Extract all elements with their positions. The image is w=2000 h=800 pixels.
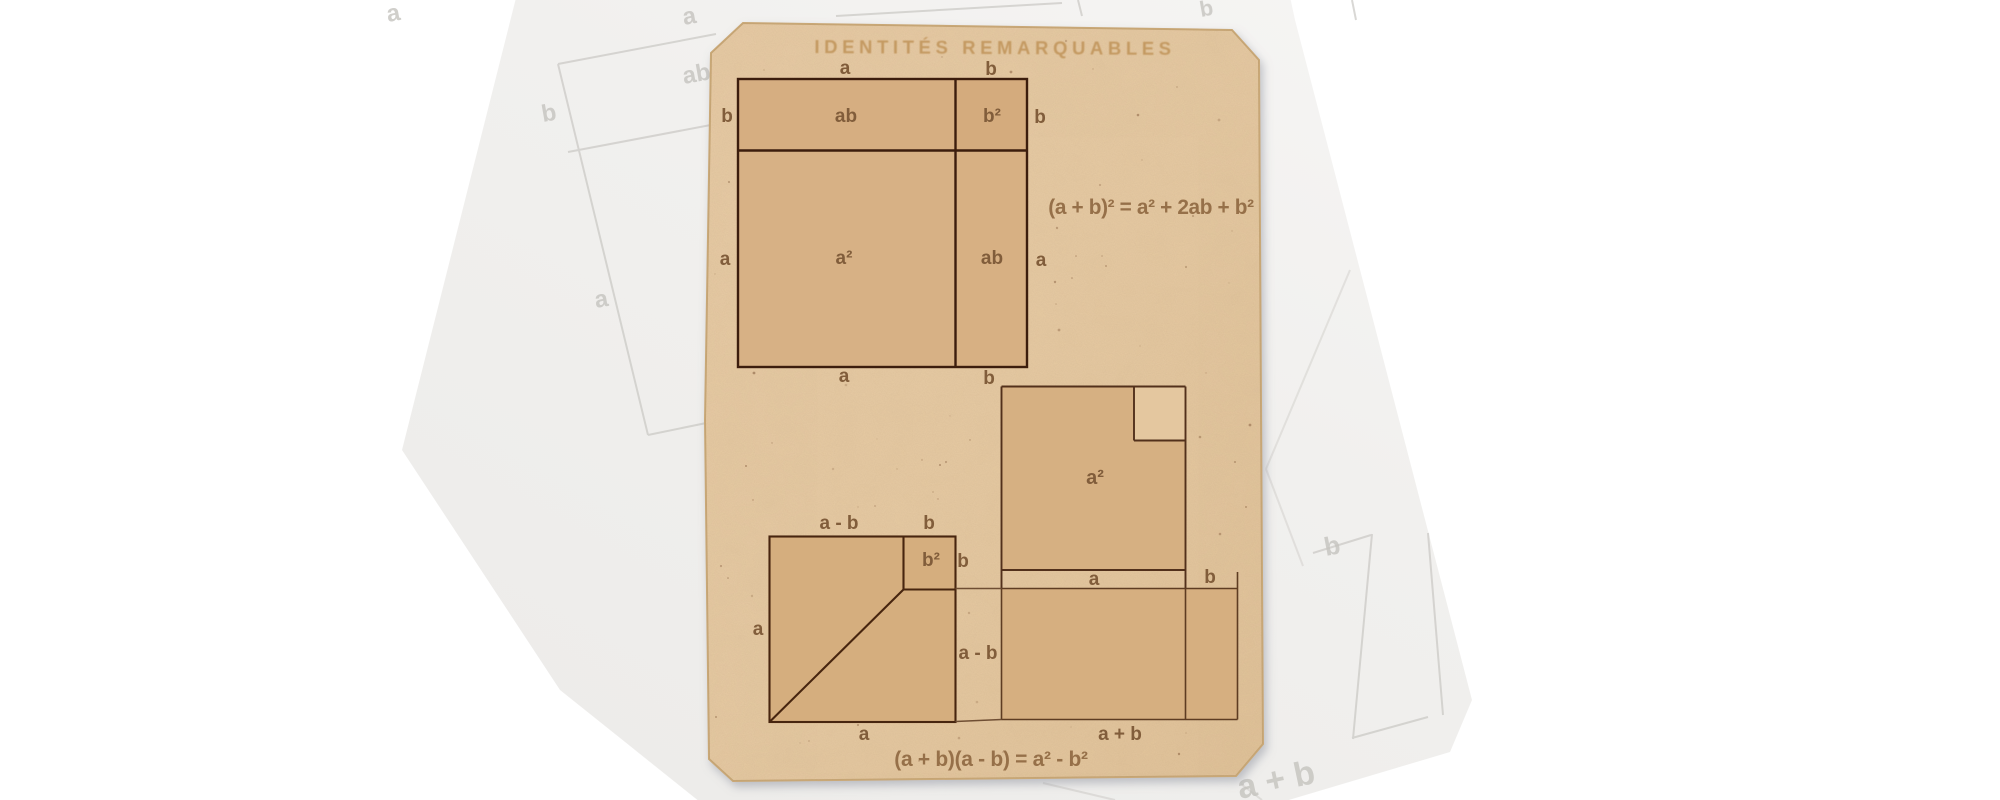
svg-text:a: a <box>753 619 764 640</box>
svg-text:(a + b)(a - b) = a² - b²: (a + b)(a - b) = a² - b² <box>894 748 1088 771</box>
svg-text:b²: b² <box>922 550 940 571</box>
svg-text:ab: ab <box>680 58 712 89</box>
svg-text:a: a <box>1036 250 1047 271</box>
svg-text:a: a <box>840 58 851 79</box>
svg-text:a²: a² <box>836 248 853 269</box>
svg-text:a - b: a - b <box>819 513 858 534</box>
svg-text:b²: b² <box>983 106 1001 127</box>
svg-text:b: b <box>985 59 997 80</box>
svg-text:b: b <box>923 513 935 534</box>
svg-text:a + b: a + b <box>1098 724 1142 745</box>
svg-text:a: a <box>859 724 870 745</box>
svg-text:a - b: a - b <box>958 643 997 664</box>
svg-text:(a + b)² = a² + 2ab + b²: (a + b)² = a² + 2ab + b² <box>1048 196 1254 219</box>
svg-text:a: a <box>839 366 850 387</box>
svg-text:a: a <box>720 249 731 270</box>
svg-text:ab: ab <box>835 106 857 127</box>
svg-text:a: a <box>384 0 402 28</box>
svg-text:b: b <box>957 551 969 572</box>
svg-text:IDENTITÉS REMARQUABLES: IDENTITÉS REMARQUABLES <box>814 36 1175 59</box>
svg-text:b: b <box>983 368 995 389</box>
svg-text:b: b <box>1204 567 1216 588</box>
svg-text:a²: a² <box>1086 467 1104 489</box>
svg-text:ab: ab <box>981 248 1003 269</box>
svg-text:b: b <box>1034 107 1046 128</box>
svg-text:a: a <box>1089 569 1100 590</box>
svg-text:b: b <box>721 106 733 127</box>
